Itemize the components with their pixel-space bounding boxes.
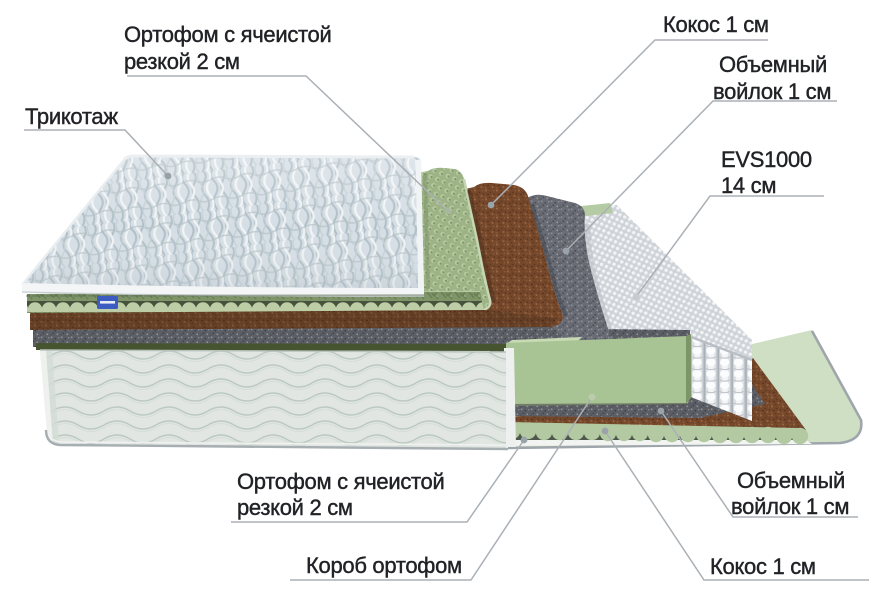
svg-text:14 см: 14 см xyxy=(721,173,776,198)
svg-text:резкой 2 см: резкой 2 см xyxy=(124,49,240,74)
svg-text:Трикотаж: Трикотаж xyxy=(25,104,118,129)
svg-text:Ортофом с ячеистой: Ортофом с ячеистой xyxy=(237,469,444,494)
svg-text:Кокос 1 см: Кокос 1 см xyxy=(710,554,816,579)
svg-text:Объемный: Объемный xyxy=(719,52,827,77)
svg-text:EVS1000: EVS1000 xyxy=(721,147,812,172)
svg-text:войлок 1 см: войлок 1 см xyxy=(713,79,831,104)
svg-text:Кокос 1 см: Кокос 1 см xyxy=(663,12,769,37)
svg-text:Ортофом с ячеистой: Ортофом с ячеистой xyxy=(124,22,331,47)
svg-text:Короб ортофом: Короб ортофом xyxy=(306,553,462,578)
svg-text:войлок 1 см: войлок 1 см xyxy=(731,494,849,519)
svg-text:резкой 2 см: резкой 2 см xyxy=(237,495,353,520)
svg-text:Объемный: Объемный xyxy=(737,468,845,493)
